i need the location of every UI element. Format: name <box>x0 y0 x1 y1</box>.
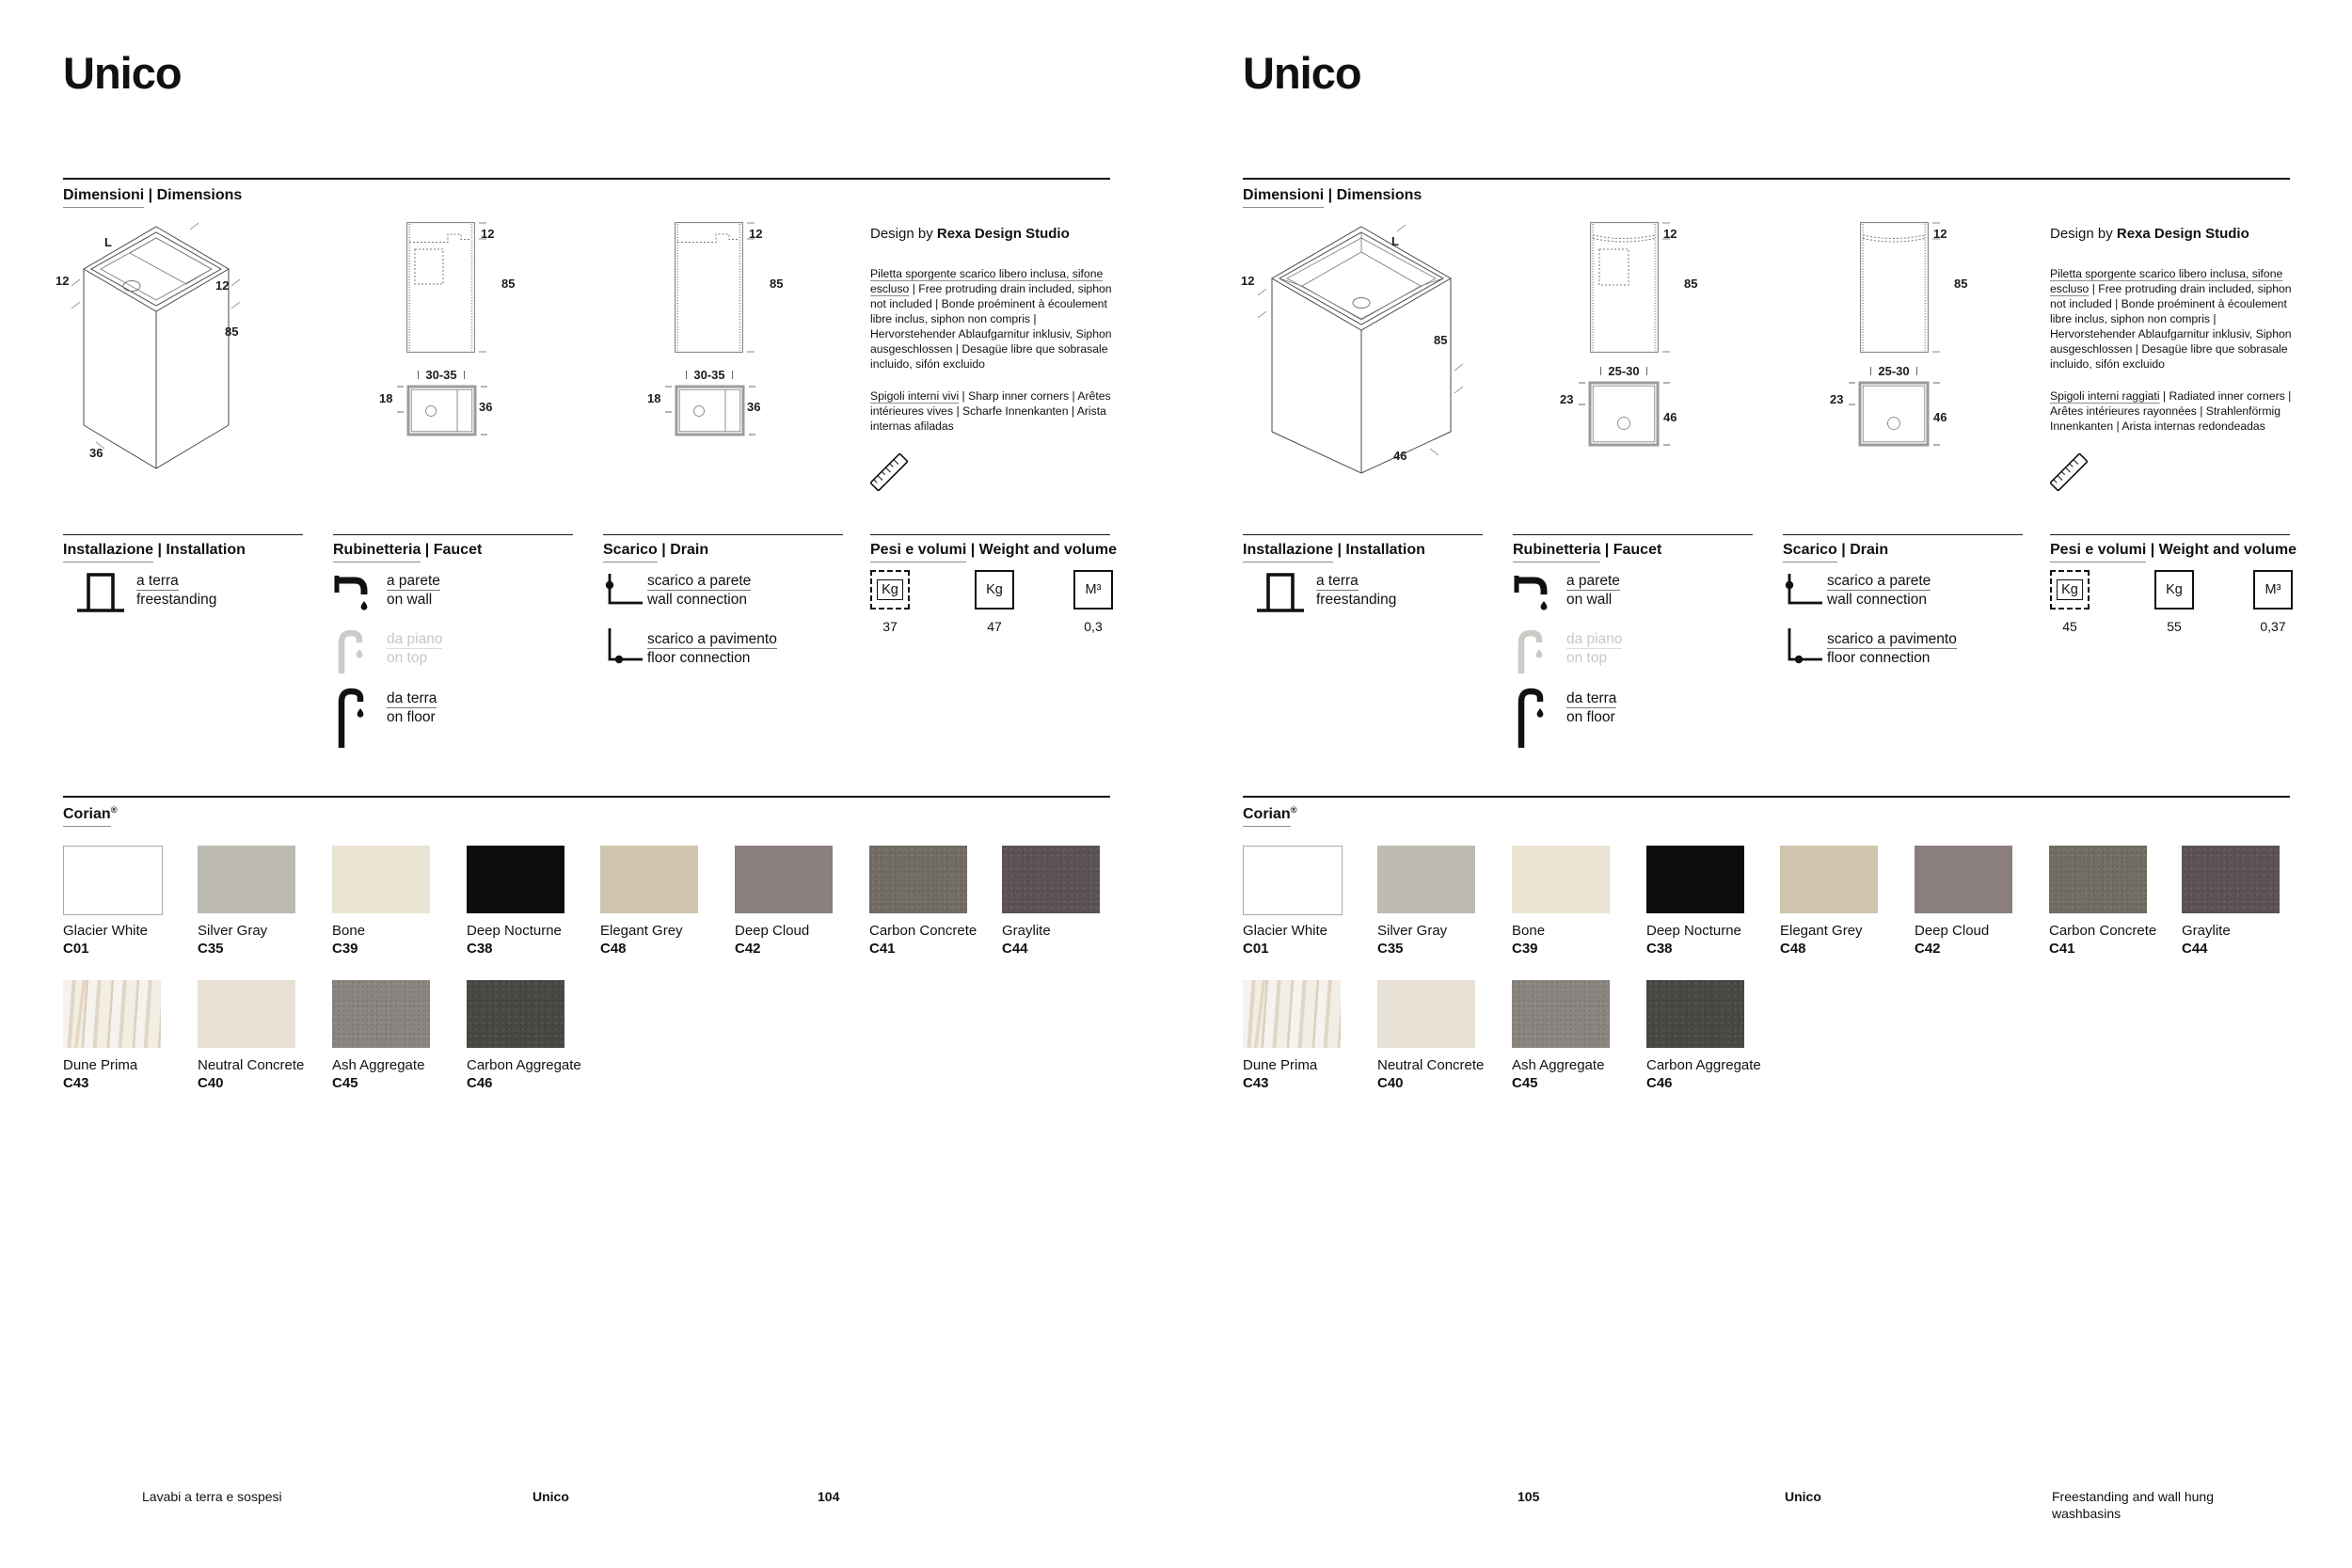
swatch-name: Neutral Concrete <box>198 1056 304 1074</box>
corian-swatch-label: Silver GrayC35 <box>198 922 267 958</box>
faucet-item-en: on floor <box>1566 709 1615 725</box>
dim-label-span: 30-35 <box>405 368 478 382</box>
corian-swatch <box>198 980 295 1048</box>
swatch-name: Elegant Grey <box>600 922 683 940</box>
corian-swatch-label: Dune PrimaC43 <box>1243 1056 1317 1092</box>
installation-item-en: freestanding <box>1316 592 1396 608</box>
dim-label-height: 85 <box>1684 277 1697 291</box>
dim-label-rim: 12 <box>1663 227 1677 241</box>
swatch-code: C40 <box>1377 1074 1484 1092</box>
kg-gross-box: Kg <box>2154 570 2194 610</box>
weights-title-sep: | <box>2146 542 2158 558</box>
swatch-code: C39 <box>1512 940 1545 958</box>
dimensions-section-title: Dimensioni | Dimensions <box>1243 187 1422 204</box>
swatch-name: Carbon Aggregate <box>467 1056 581 1074</box>
dim-label-height: 85 <box>1434 333 1447 347</box>
swatch-code: C48 <box>1780 940 1863 958</box>
top-rule <box>1243 178 2290 180</box>
catalog-spread: Unico Dimensioni | Dimensions <box>0 0 2352 1568</box>
dim-span-value: 25-30 <box>1608 364 1639 378</box>
drain-item-it: scarico a pavimento <box>1827 631 1957 649</box>
kg-net-box: Kg <box>2050 570 2090 610</box>
swatch-name: Deep Nocturne <box>1646 922 1741 940</box>
dim-label-thickness-left: 12 <box>56 274 69 288</box>
corian-swatch-label: Carbon ConcreteC41 <box>869 922 977 958</box>
corian-swatch <box>332 846 430 913</box>
swatch-code: C41 <box>869 940 977 958</box>
faucet-item-it: a parete <box>387 573 440 591</box>
corian-swatch <box>63 846 163 915</box>
plan-view-drawing <box>1847 368 1942 461</box>
corian-swatch-label: Elegant GreyC48 <box>1780 922 1863 958</box>
corian-swatch-label: GrayliteC44 <box>1002 922 1051 958</box>
front-view-drawing <box>675 222 757 353</box>
swatch-name: Glacier White <box>1243 922 1327 940</box>
front-view-drawing <box>1860 222 1943 353</box>
faucet-item-en: on wall <box>1566 592 1612 608</box>
weights-title-en: Weight and volume <box>2159 542 2296 558</box>
dim-span-value: 30-35 <box>693 368 724 382</box>
section-rule <box>2050 534 2290 535</box>
kg-gross-value: 47 <box>975 619 1014 634</box>
faucet-top-icon <box>1515 628 1550 673</box>
faucet-item-en: on floor <box>387 709 436 725</box>
corian-swatch-label: Deep NocturneC38 <box>467 922 562 958</box>
faucet-item-floor: da terra on floor <box>387 689 437 727</box>
dim-label-offset: 23 <box>1560 392 1573 406</box>
swatch-name: Elegant Grey <box>1780 922 1863 940</box>
drain-item-it: scarico a pavimento <box>647 631 777 649</box>
swatch-code: C38 <box>1646 940 1741 958</box>
corian-swatch <box>1646 846 1744 913</box>
swatch-name: Dune Prima <box>1243 1056 1317 1074</box>
drain-section-title: Scarico | Drain <box>603 542 708 559</box>
faucet-item-floor: da terra on floor <box>1566 689 1616 727</box>
dim-label-rim: 12 <box>749 227 762 241</box>
corian-swatch-label: GrayliteC44 <box>2182 922 2231 958</box>
swatch-name: Silver Gray <box>1377 922 1447 940</box>
corian-swatch <box>2182 846 2280 913</box>
installation-item-it: a terra <box>136 573 179 591</box>
kg-gross-box: Kg <box>975 570 1014 610</box>
kg-net-value: 45 <box>2050 619 2090 634</box>
swatch-code: C35 <box>198 940 267 958</box>
swatch-code: C44 <box>1002 940 1051 958</box>
corian-swatch-label: BoneC39 <box>332 922 365 958</box>
volume-box: M³ <box>1073 570 1113 610</box>
corian-swatch <box>600 846 698 913</box>
faucet-wall-icon <box>333 572 373 615</box>
corian-swatch-label: Carbon AggregateC46 <box>467 1056 581 1092</box>
swatch-code: C44 <box>2182 940 2231 958</box>
weights-title-en: Weight and volume <box>979 542 1117 558</box>
volume-box: M³ <box>2253 570 2293 610</box>
swatch-name: Graylite <box>1002 922 1051 940</box>
installation-title-en: Installation <box>166 542 245 558</box>
note-drain-rest: | Free protruding drain included, siphon… <box>2050 282 2292 371</box>
faucet-title-en: Faucet <box>1613 542 1662 558</box>
corian-swatch-label: Elegant GreyC48 <box>600 922 683 958</box>
footer-caption: Freestanding and wall hung washbasins <box>2052 1488 2214 1522</box>
swatch-code: C01 <box>1243 940 1327 958</box>
left-page: Unico Dimensioni | Dimensions <box>63 0 1110 1568</box>
drain-item-wall: scarico a parete wall connection <box>1827 572 1931 610</box>
corian-swatch <box>1780 846 1878 913</box>
top-rule <box>63 178 1110 180</box>
swatch-code: C45 <box>332 1074 424 1092</box>
swatch-name: Carbon Concrete <box>2049 922 2156 940</box>
swatch-code: C41 <box>2049 940 2156 958</box>
dim-label-offset: 23 <box>1830 392 1843 406</box>
weights-section-title: Pesi e volumi | Weight and volume <box>2050 542 2296 559</box>
dim-label-height: 85 <box>1954 277 1967 291</box>
corian-swatch-label: Carbon ConcreteC41 <box>2049 922 2156 958</box>
kg-net-value: 37 <box>870 619 910 634</box>
drain-item-wall: scarico a parete wall connection <box>647 572 751 610</box>
faucet-wall-icon <box>1513 572 1552 615</box>
note-edges-it: Spigoli interni vivi <box>870 389 959 403</box>
faucet-title-it: Rubinetteria <box>333 542 421 562</box>
corian-rule <box>63 796 1110 798</box>
freestanding-icon <box>75 570 126 617</box>
faucet-item-it: da piano <box>1566 631 1622 649</box>
weights-title-it: Pesi e volumi <box>870 542 966 562</box>
installation-title-it: Installazione <box>63 542 153 562</box>
dim-label-offset: 18 <box>379 391 392 405</box>
freestanding-icon <box>1255 570 1306 617</box>
faucet-item-wall: a parete on wall <box>387 572 440 610</box>
faucet-item-it: da terra <box>1566 690 1616 708</box>
dimensions-title-en: Dimensions <box>1337 187 1422 203</box>
dim-label-depth: 46 <box>1933 410 1947 424</box>
corian-swatch <box>1915 846 2012 913</box>
swatch-name: Carbon Concrete <box>869 922 977 940</box>
weights-title-it: Pesi e volumi <box>2050 542 2146 562</box>
installation-title-it: Installazione <box>1243 542 1333 562</box>
ruler-icon <box>2050 453 2088 491</box>
swatch-code: C42 <box>1915 940 1989 958</box>
dimensions-section-title: Dimensioni | Dimensions <box>63 187 242 204</box>
dim-label-width: 36 <box>89 446 103 460</box>
swatch-name: Carbon Aggregate <box>1646 1056 1761 1074</box>
kg-net-unit: Kg <box>877 579 903 600</box>
dimensions-title-it: Dimensioni <box>63 187 144 208</box>
iso-drawing <box>70 220 243 474</box>
installation-title-sep: | <box>1333 542 1345 558</box>
drain-wall-icon <box>1783 572 1826 610</box>
drain-title-it: Scarico <box>603 542 658 562</box>
dim-label-height: 85 <box>501 277 515 291</box>
dim-label-length: L <box>104 235 112 249</box>
swatch-name: Ash Aggregate <box>1512 1056 1604 1074</box>
swatch-name: Deep Cloud <box>1915 922 1989 940</box>
drain-item-en: floor connection <box>1827 650 1930 666</box>
corian-section-title: Corian® <box>63 805 118 823</box>
design-credit-prefix: Design by <box>870 226 937 242</box>
design-credit: Design by Rexa Design Studio <box>2050 226 2300 242</box>
dim-label-rim: 12 <box>481 227 494 241</box>
dim-label-length: L <box>1391 234 1399 248</box>
page-title: Unico <box>1243 47 1361 99</box>
faucet-item-it: da piano <box>387 631 442 649</box>
swatch-name: Bone <box>332 922 365 940</box>
dim-label-rim: 12 <box>1933 227 1947 241</box>
corian-swatch-label: Neutral ConcreteC40 <box>198 1056 304 1092</box>
corian-swatch <box>1243 980 1341 1048</box>
weights-section-title: Pesi e volumi | Weight and volume <box>870 542 1117 559</box>
drain-title-sep: | <box>1837 542 1850 558</box>
drain-title-en: Drain <box>1850 542 1888 558</box>
volume-unit: M³ <box>2265 582 2281 597</box>
corian-section-title: Corian® <box>1243 805 1297 823</box>
corian-title: Corian <box>63 806 111 827</box>
note-drain: Piletta sporgente scarico libero inclusa… <box>2050 266 2300 372</box>
footer-caption-line2: washbasins <box>2052 1505 2214 1522</box>
swatch-code: C43 <box>1243 1074 1317 1092</box>
swatch-name: Deep Nocturne <box>467 922 562 940</box>
drain-item-en: wall connection <box>1827 592 1927 608</box>
section-rule <box>1513 534 1753 535</box>
kg-net-box: Kg <box>870 570 910 610</box>
installation-title-en: Installation <box>1345 542 1424 558</box>
swatch-name: Silver Gray <box>198 922 267 940</box>
faucet-item-en: on top <box>387 650 427 666</box>
kg-gross-value: 55 <box>2154 619 2194 634</box>
installation-item: a terra freestanding <box>1316 572 1396 610</box>
corian-swatch <box>1512 846 1610 913</box>
corian-swatch-label: Deep NocturneC38 <box>1646 922 1741 958</box>
corian-swatch <box>198 846 295 913</box>
kg-gross-unit: Kg <box>986 582 1003 597</box>
note-drain-rest: | Free protruding drain included, siphon… <box>870 282 1112 371</box>
corian-swatch-label: BoneC39 <box>1512 922 1545 958</box>
design-studio-name: Rexa Design Studio <box>2117 226 2249 242</box>
swatch-code: C46 <box>1646 1074 1761 1092</box>
drain-section-title: Scarico | Drain <box>1783 542 1888 559</box>
faucet-floor-icon <box>335 688 371 748</box>
footer-model-name: Unico <box>532 1488 569 1505</box>
faucet-title-sep: | <box>1600 542 1613 558</box>
faucet-section-title: Rubinetteria | Faucet <box>333 542 482 559</box>
dim-label-span: 25-30 <box>1856 364 1931 378</box>
faucet-item-wall: a parete on wall <box>1566 572 1620 610</box>
drain-title-en: Drain <box>670 542 708 558</box>
volume-value: 0,37 <box>2253 619 2293 634</box>
swatch-name: Dune Prima <box>63 1056 137 1074</box>
dimensions-title-sep: | <box>1324 187 1336 203</box>
dim-label-depth: 36 <box>479 400 492 414</box>
dim-label-span: 25-30 <box>1586 364 1661 378</box>
swatch-name: Graylite <box>2182 922 2231 940</box>
corian-swatch <box>1512 980 1610 1048</box>
volume-value: 0,3 <box>1073 619 1113 634</box>
section-rule <box>1243 534 1483 535</box>
dim-label-thickness-right: 12 <box>215 278 229 293</box>
footer-caption-line1: Freestanding and wall hung <box>2052 1488 2214 1505</box>
faucet-top-icon <box>335 628 371 673</box>
faucet-item-en: on top <box>1566 650 1607 666</box>
corian-swatch <box>467 980 564 1048</box>
footer-page-number: 104 <box>818 1488 839 1505</box>
dim-label-thickness-left: 12 <box>1241 274 1254 288</box>
corian-swatch-label: Glacier WhiteC01 <box>63 922 148 958</box>
corian-swatch <box>63 980 161 1048</box>
installation-item-en: freestanding <box>136 592 216 608</box>
dim-label-span: 30-35 <box>673 368 746 382</box>
corian-swatch-label: Ash AggregateC45 <box>332 1056 424 1092</box>
swatch-name: Ash Aggregate <box>332 1056 424 1074</box>
drain-item-it: scarico a parete <box>1827 573 1931 591</box>
page-title: Unico <box>63 47 182 99</box>
swatch-code: C46 <box>467 1074 581 1092</box>
section-rule <box>603 534 843 535</box>
corian-swatch-label: Silver GrayC35 <box>1377 922 1447 958</box>
note-drain: Piletta sporgente scarico libero inclusa… <box>870 266 1120 372</box>
swatch-name: Neutral Concrete <box>1377 1056 1484 1074</box>
corian-swatch <box>869 846 967 913</box>
note-edges: Spigoli interni vivi | Sharp inner corne… <box>870 388 1120 434</box>
faucet-title-en: Faucet <box>434 542 483 558</box>
section-rule <box>333 534 573 535</box>
registered-mark: ® <box>111 805 118 816</box>
weights-title-sep: | <box>966 542 978 558</box>
faucet-item-top: da piano on top <box>1566 630 1622 668</box>
registered-mark: ® <box>1291 805 1297 816</box>
design-credit-prefix: Design by <box>2050 226 2117 242</box>
drain-wall-icon <box>603 572 646 610</box>
faucet-item-top: da piano on top <box>387 630 442 668</box>
plan-view-drawing <box>1577 368 1672 461</box>
corian-swatch-label: Glacier WhiteC01 <box>1243 922 1327 958</box>
footer-section-name: Lavabi a terra e sospesi <box>142 1488 282 1505</box>
swatch-code: C38 <box>467 940 562 958</box>
corian-swatch <box>1377 980 1475 1048</box>
dimensions-title-en: Dimensions <box>157 187 243 203</box>
faucet-floor-icon <box>1515 688 1550 748</box>
dim-span-value: 30-35 <box>425 368 456 382</box>
corian-swatch-label: Dune PrimaC43 <box>63 1056 137 1092</box>
installation-title-sep: | <box>153 542 166 558</box>
corian-swatch <box>735 846 833 913</box>
drain-item-en: floor connection <box>647 650 750 666</box>
corian-title: Corian <box>1243 806 1291 827</box>
corian-swatch-label: Deep CloudC42 <box>735 922 809 958</box>
corian-swatch <box>2049 846 2147 913</box>
front-view-drawing <box>406 222 489 353</box>
dim-label-depth: 36 <box>747 400 760 414</box>
volume-unit: M³ <box>1086 582 1102 597</box>
drain-item-floor: scarico a pavimento floor connection <box>647 630 777 668</box>
footer-model-name: Unico <box>1785 1488 1821 1505</box>
footer-page-number: 105 <box>1518 1488 1539 1505</box>
swatch-code: C42 <box>735 940 809 958</box>
swatch-code: C43 <box>63 1074 137 1092</box>
faucet-title-sep: | <box>421 542 433 558</box>
kg-gross-unit: Kg <box>2166 582 2183 597</box>
corian-swatch <box>1243 846 1343 915</box>
swatch-code: C39 <box>332 940 365 958</box>
dim-span-value: 25-30 <box>1878 364 1909 378</box>
corian-swatch-label: Ash AggregateC45 <box>1512 1056 1604 1092</box>
drain-item-it: scarico a parete <box>647 573 751 591</box>
swatch-code: C40 <box>198 1074 304 1092</box>
right-page: Unico Dimensioni | Dimensions <box>1243 0 2290 1568</box>
drain-title-it: Scarico <box>1783 542 1837 562</box>
section-rule <box>1783 534 2023 535</box>
swatch-code: C45 <box>1512 1074 1604 1092</box>
faucet-item-it: da terra <box>387 690 437 708</box>
faucet-item-it: a parete <box>1566 573 1620 591</box>
drain-item-floor: scarico a pavimento floor connection <box>1827 630 1957 668</box>
dim-label-offset: 18 <box>647 391 660 405</box>
dimensions-title-sep: | <box>144 187 156 203</box>
design-credit-block: Design by Rexa Design Studio Piletta spo… <box>870 226 1120 434</box>
corian-swatch-label: Deep CloudC42 <box>1915 922 1989 958</box>
faucet-title-it: Rubinetteria <box>1513 542 1600 562</box>
corian-swatch <box>332 980 430 1048</box>
dim-label-height: 85 <box>770 277 783 291</box>
corian-swatch <box>1646 980 1744 1048</box>
faucet-section-title: Rubinetteria | Faucet <box>1513 542 1661 559</box>
corian-rule <box>1243 796 2290 798</box>
swatch-code: C35 <box>1377 940 1447 958</box>
front-view-drawing <box>1590 222 1673 353</box>
corian-swatch <box>1377 846 1475 913</box>
drain-floor-icon <box>1783 628 1826 668</box>
dim-label-height: 85 <box>225 325 238 339</box>
dim-label-depth: 46 <box>1663 410 1677 424</box>
corian-swatch <box>467 846 564 913</box>
corian-swatch <box>1002 846 1100 913</box>
design-credit-block: Design by Rexa Design Studio Piletta spo… <box>2050 226 2300 434</box>
swatch-code: C48 <box>600 940 683 958</box>
installation-section-title: Installazione | Installation <box>63 542 246 559</box>
dimensions-title-it: Dimensioni <box>1243 187 1324 208</box>
drain-title-sep: | <box>658 542 670 558</box>
kg-net-unit: Kg <box>2057 579 2083 600</box>
iso-drawing <box>1256 220 1468 476</box>
swatch-code: C01 <box>63 940 148 958</box>
plan-view-drawing <box>663 372 758 451</box>
dim-label-width: 46 <box>1393 449 1406 463</box>
drain-item-en: wall connection <box>647 592 747 608</box>
plan-view-drawing <box>395 372 490 451</box>
note-edges: Spigoli interni raggiati | Radiated inne… <box>2050 388 2300 434</box>
ruler-icon <box>870 453 908 491</box>
installation-item: a terra freestanding <box>136 572 216 610</box>
note-edges-it: Spigoli interni raggiati <box>2050 389 2160 403</box>
section-rule <box>870 534 1110 535</box>
design-studio-name: Rexa Design Studio <box>937 226 1070 242</box>
design-credit: Design by Rexa Design Studio <box>870 226 1120 242</box>
installation-section-title: Installazione | Installation <box>1243 542 1425 559</box>
section-rule <box>63 534 303 535</box>
installation-item-it: a terra <box>1316 573 1359 591</box>
faucet-item-en: on wall <box>387 592 432 608</box>
swatch-name: Deep Cloud <box>735 922 809 940</box>
corian-swatch-label: Neutral ConcreteC40 <box>1377 1056 1484 1092</box>
corian-swatch-label: Carbon AggregateC46 <box>1646 1056 1761 1092</box>
swatch-name: Glacier White <box>63 922 148 940</box>
swatch-name: Bone <box>1512 922 1545 940</box>
drain-floor-icon <box>603 628 646 668</box>
